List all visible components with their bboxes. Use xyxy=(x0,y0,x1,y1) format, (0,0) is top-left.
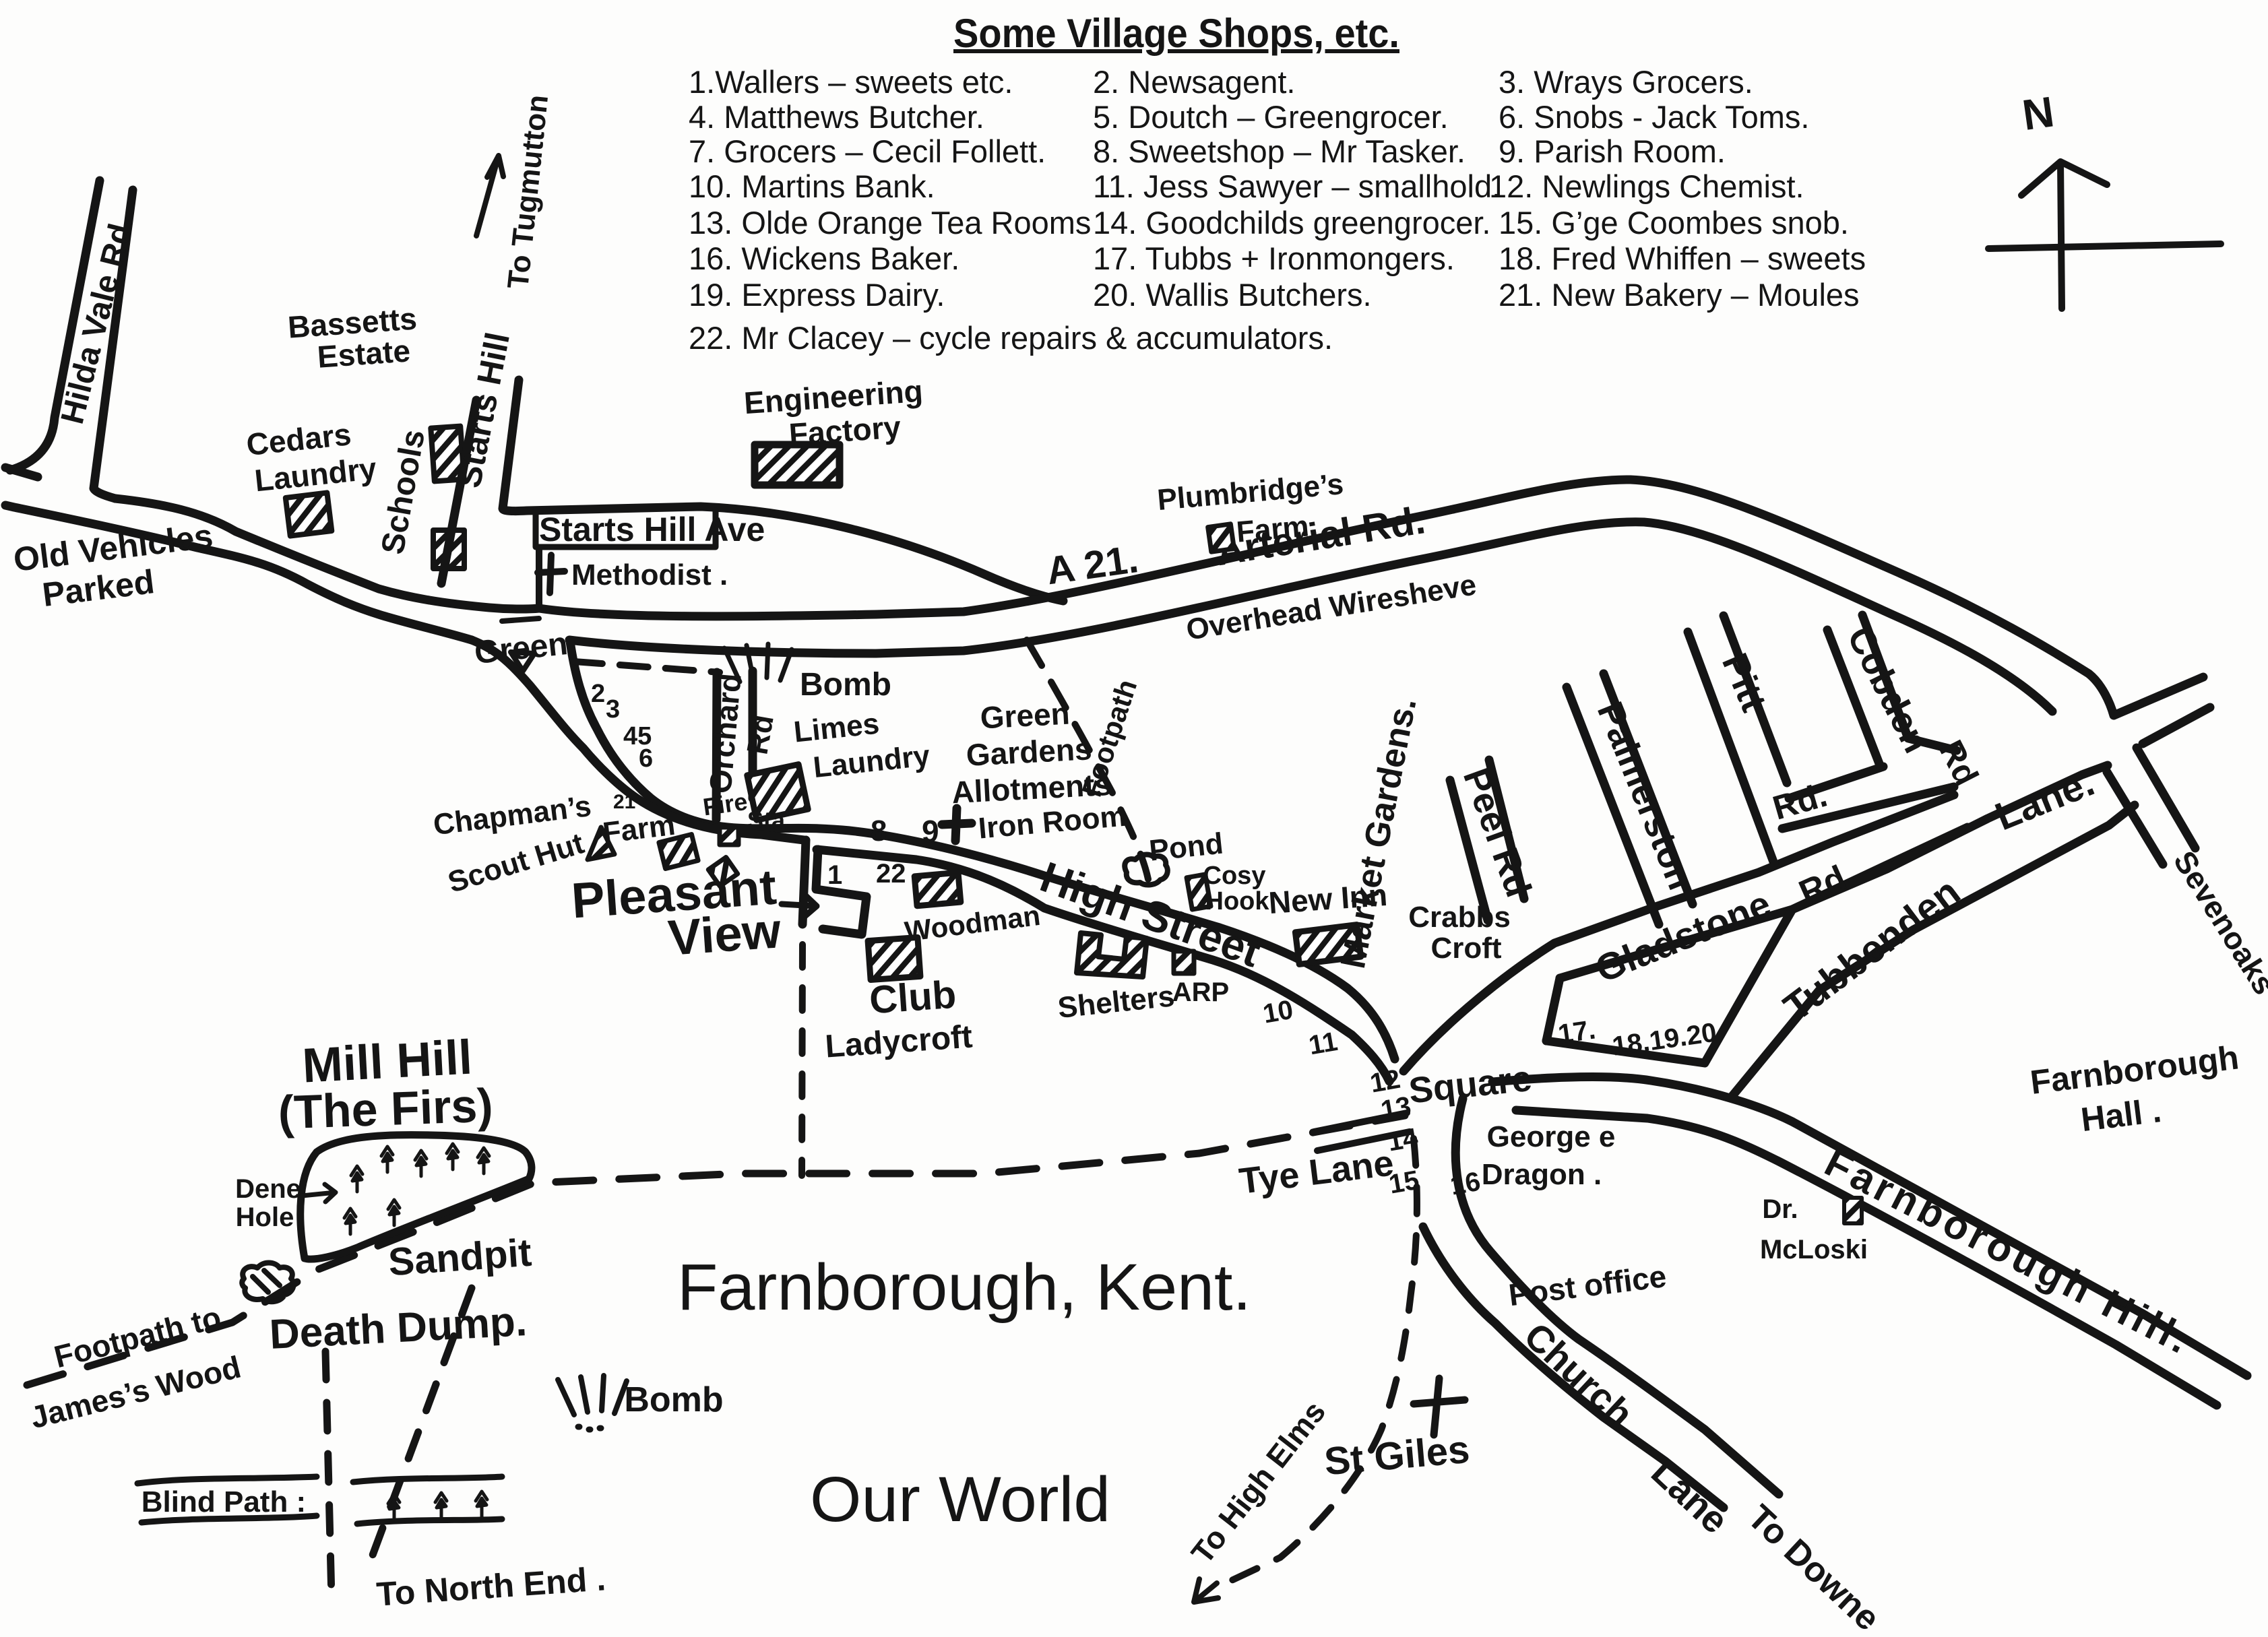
svg-text:12. Newlings Chemist.: 12. Newlings Chemist. xyxy=(1489,168,1804,204)
svg-text:21. New Bakery – Moules: 21. New Bakery – Moules xyxy=(1499,277,1860,313)
svg-text:17. Tubbs + Ironmongers.: 17. Tubbs + Ironmongers. xyxy=(1093,240,1455,276)
svg-text:ARP: ARP xyxy=(1172,977,1229,1007)
svg-text:Club: Club xyxy=(868,973,957,1023)
svg-text:Dragon .: Dragon . xyxy=(1482,1158,1602,1191)
svg-text:13. Olde Orange Tea Rooms: 13. Olde Orange Tea Rooms xyxy=(689,205,1091,240)
svg-text:Bomb: Bomb xyxy=(800,667,891,703)
svg-text:1: 1 xyxy=(827,860,842,890)
svg-text:6. Snobs - Jack Toms.: 6. Snobs - Jack Toms. xyxy=(1499,99,1810,135)
svg-text:4. Matthews Butcher.: 4. Matthews Butcher. xyxy=(689,99,984,135)
svg-text:Some Village Shops, etc.: Some Village Shops, etc. xyxy=(953,11,1399,56)
svg-text:Crabbs: Crabbs xyxy=(1408,901,1511,934)
svg-text:11. Jess Sawyer – smallhold.: 11. Jess Sawyer – smallhold. xyxy=(1093,168,1501,204)
svg-text:Dr.: Dr. xyxy=(1762,1194,1798,1224)
svg-text:Croft: Croft xyxy=(1430,932,1501,965)
svg-text:16. Wickens Baker.: 16. Wickens Baker. xyxy=(689,240,959,276)
svg-text:18. Fred Whiffen – sweets: 18. Fred Whiffen – sweets xyxy=(1499,240,1866,276)
svg-text:7. Grocers – Cecil Follett.: 7. Grocers – Cecil Follett. xyxy=(689,133,1046,169)
svg-text:6: 6 xyxy=(639,744,653,773)
svg-text:9: 9 xyxy=(922,814,939,849)
svg-text:8. Sweetshop – Mr Tasker.: 8. Sweetshop – Mr Tasker. xyxy=(1093,133,1466,169)
svg-text:Gardens: Gardens xyxy=(966,731,1093,773)
svg-text:10: 10 xyxy=(1261,995,1295,1029)
svg-text:21: 21 xyxy=(613,791,635,813)
svg-text:View: View xyxy=(666,902,783,965)
svg-text:5. Doutch – Greengrocer.: 5. Doutch – Greengrocer. xyxy=(1093,99,1449,135)
svg-text:Sta: Sta xyxy=(747,806,786,834)
svg-text:Hole: Hole xyxy=(236,1202,294,1232)
svg-text:Our World: Our World xyxy=(810,1464,1110,1535)
svg-text:8: 8 xyxy=(871,814,887,847)
svg-text:17.: 17. xyxy=(1556,1015,1598,1049)
svg-text:Dene: Dene xyxy=(235,1174,301,1204)
svg-text:(The Firs): (The Firs) xyxy=(277,1079,493,1138)
svg-text:1.Wallers – sweets etc.: 1.Wallers – sweets etc. xyxy=(689,64,1013,100)
svg-text:19. Express Dairy.: 19. Express Dairy. xyxy=(689,277,945,313)
svg-text:Blind Path :: Blind Path : xyxy=(141,1485,306,1518)
svg-text:2: 2 xyxy=(591,680,605,708)
svg-text:3. Wrays Grocers.: 3. Wrays Grocers. xyxy=(1499,64,1753,100)
svg-text:11: 11 xyxy=(1306,1027,1340,1061)
svg-text:Estate: Estate xyxy=(316,333,411,375)
svg-text:McLoski: McLoski xyxy=(1760,1235,1868,1264)
svg-text:22. Mr Clacey – cycle repairs: 22. Mr Clacey – cycle repairs & accumula… xyxy=(689,320,1333,356)
svg-text:14. Goodchilds greengrocer.: 14. Goodchilds greengrocer. xyxy=(1093,205,1490,240)
svg-text:15. G’ge Coombes snob.: 15. G’ge Coombes snob. xyxy=(1499,205,1849,240)
svg-text:George e: George e xyxy=(1487,1120,1616,1153)
svg-text:20. Wallis Butchers.: 20. Wallis Butchers. xyxy=(1093,277,1372,313)
svg-text:22: 22 xyxy=(876,859,906,889)
svg-text:Farnborough, Kent.: Farnborough, Kent. xyxy=(677,1250,1251,1324)
svg-text:Bomb: Bomb xyxy=(624,1380,723,1419)
svg-text:10. Martins Bank.: 10. Martins Bank. xyxy=(689,168,935,204)
svg-text:Rd: Rd xyxy=(741,712,780,757)
svg-text:Farm: Farm xyxy=(1235,509,1310,548)
svg-text:Starts Hill Ave: Starts Hill Ave xyxy=(539,511,765,548)
svg-text:Cosy: Cosy xyxy=(1203,862,1266,890)
svg-text:Hook: Hook xyxy=(1205,887,1270,916)
svg-text:Green: Green xyxy=(979,696,1070,736)
svg-text:2. Newsagent.: 2. Newsagent. xyxy=(1093,64,1295,100)
svg-text:9. Parish Room.: 9. Parish Room. xyxy=(1499,133,1726,169)
svg-text:3: 3 xyxy=(606,695,620,724)
svg-text:Methodist .: Methodist . xyxy=(571,558,728,591)
